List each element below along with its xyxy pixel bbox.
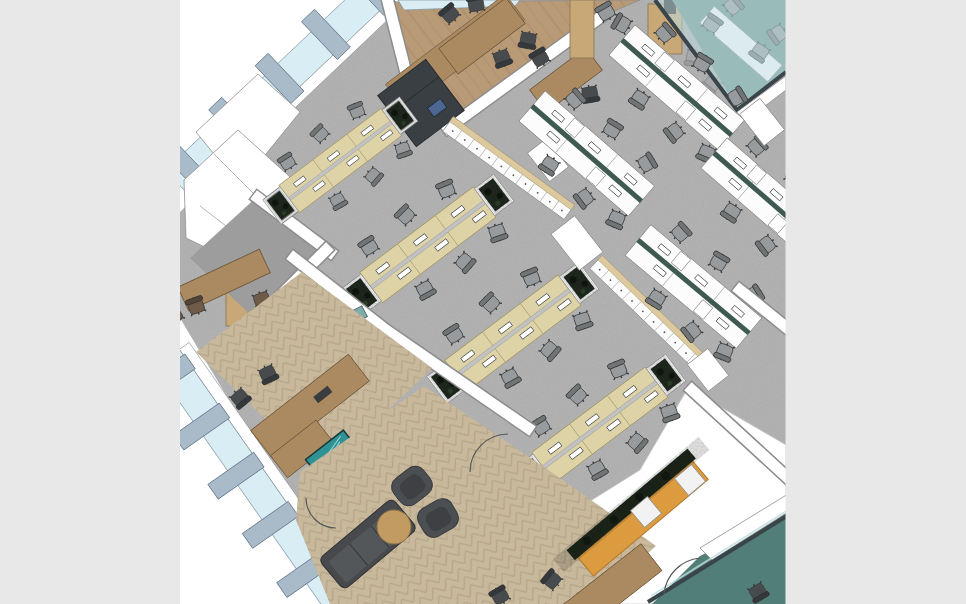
right-margin: [786, 0, 966, 604]
model-viewport[interactable]: [0, 0, 966, 604]
left-margin: [0, 0, 180, 604]
office-3d-scene: [0, 0, 966, 604]
round-ottoman: [377, 510, 411, 544]
tall-cabinet: [570, 0, 594, 58]
